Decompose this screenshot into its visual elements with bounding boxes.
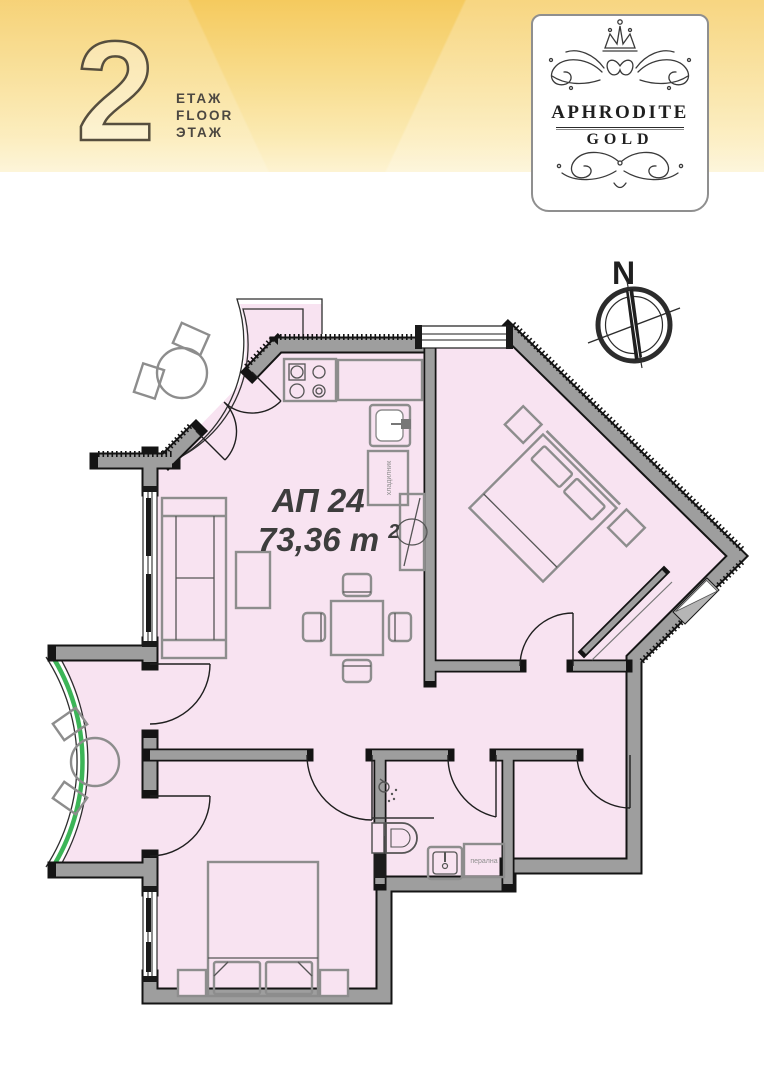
area-value: 73,36 m — [258, 521, 379, 558]
area-exponent: 2 — [387, 521, 399, 543]
apartment-area-label: 73,36 m 2 — [258, 521, 399, 558]
brand-rule — [556, 127, 684, 128]
apartment-id-label: АП 24 — [271, 482, 365, 519]
compass-north-icon: N — [588, 255, 680, 368]
brand-badge: APHRODITE GOLD — [531, 14, 709, 212]
terrace-chair — [134, 363, 164, 398]
washing-machine-label: перална — [470, 858, 497, 865]
nightstand-right — [320, 970, 348, 996]
terrace-chair — [173, 323, 209, 355]
bedroom-top-window — [415, 325, 513, 349]
fridge-label: хладилник — [386, 460, 393, 495]
compass-north-label: N — [612, 255, 635, 291]
brand-name: APHRODITE — [551, 102, 689, 124]
badge-crown-ornament-icon — [540, 16, 700, 104]
living-room-window — [142, 486, 158, 647]
badge-flourish-icon — [540, 149, 700, 199]
brand-subname: GOLD — [586, 131, 653, 149]
toilet — [372, 823, 417, 853]
terrace-furniture — [134, 323, 209, 399]
floor-plan-page: 2 ЕТАЖ FLOOR ЭТАЖ APHR — [0, 0, 764, 1080]
bedroom2-window — [142, 886, 158, 982]
nightstand-left — [178, 970, 206, 996]
